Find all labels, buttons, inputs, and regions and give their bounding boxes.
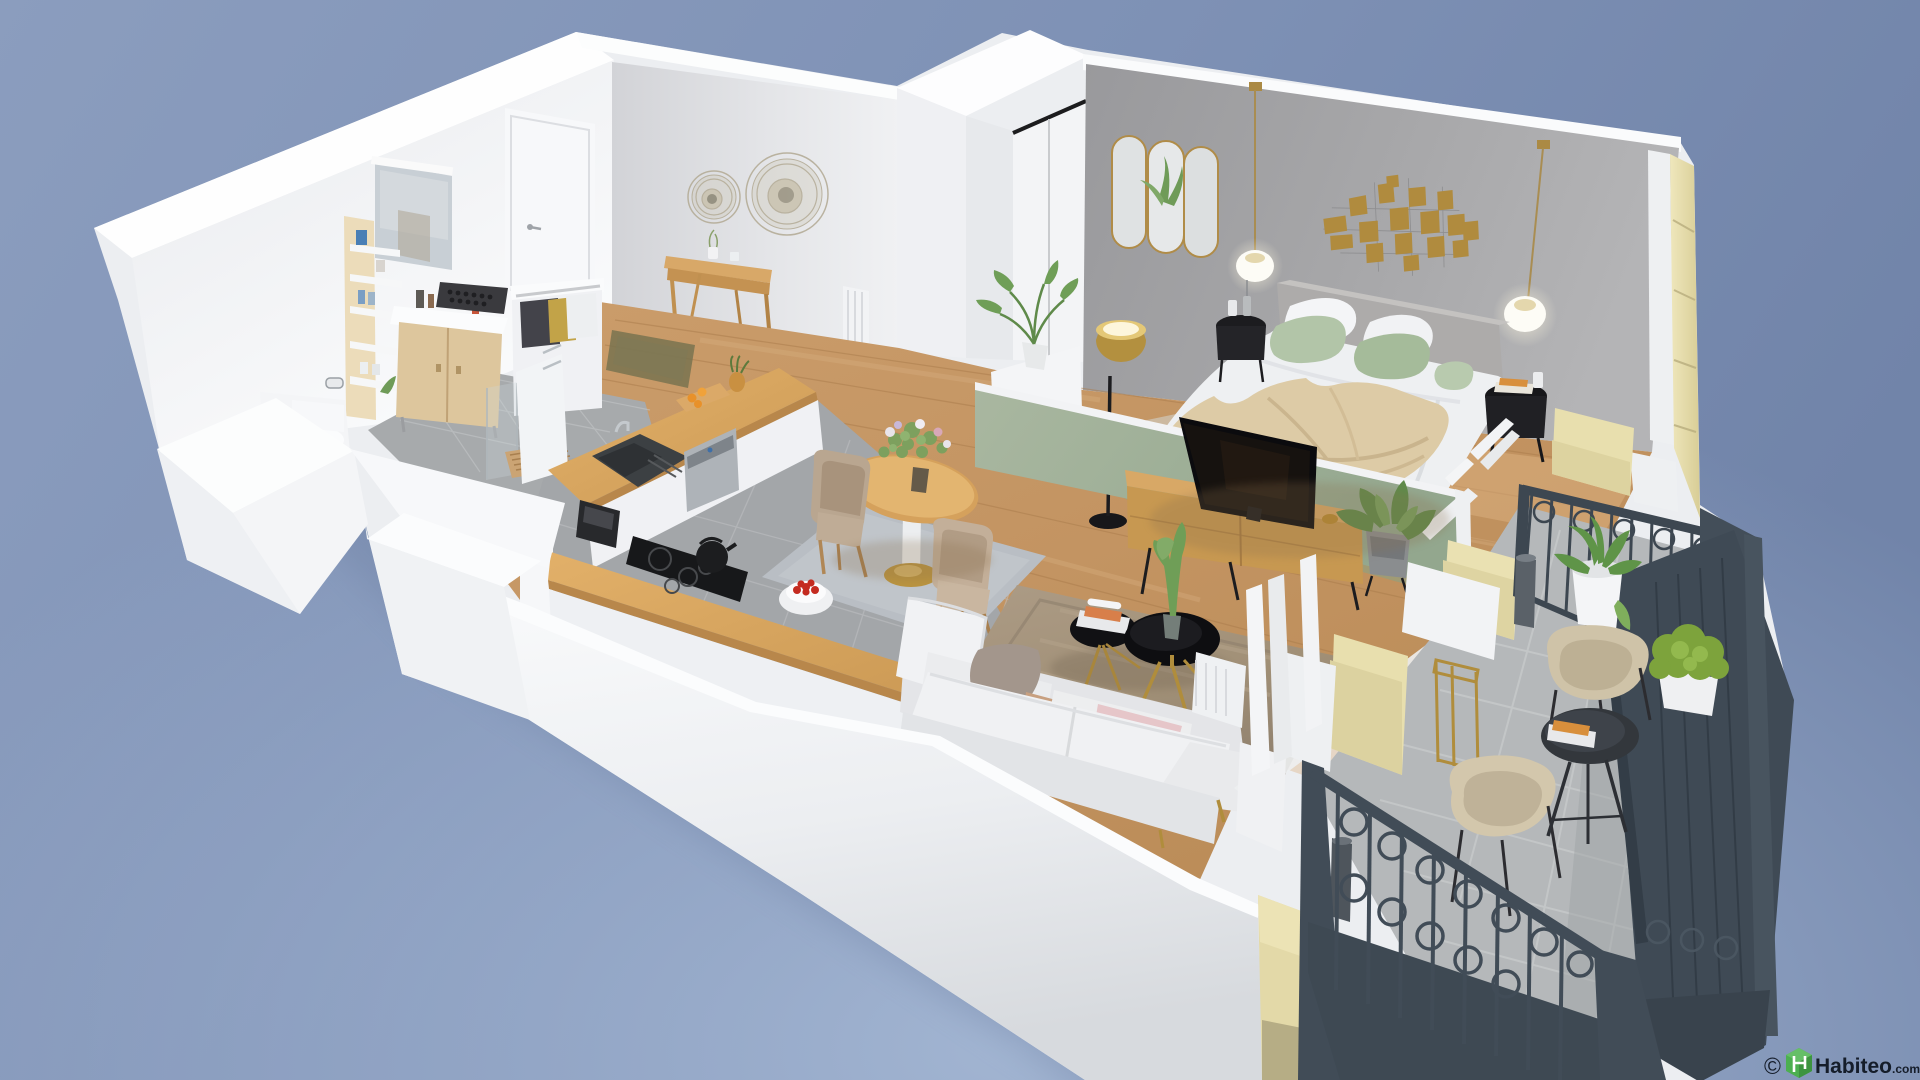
svg-text:©: ©: [1764, 1053, 1781, 1079]
